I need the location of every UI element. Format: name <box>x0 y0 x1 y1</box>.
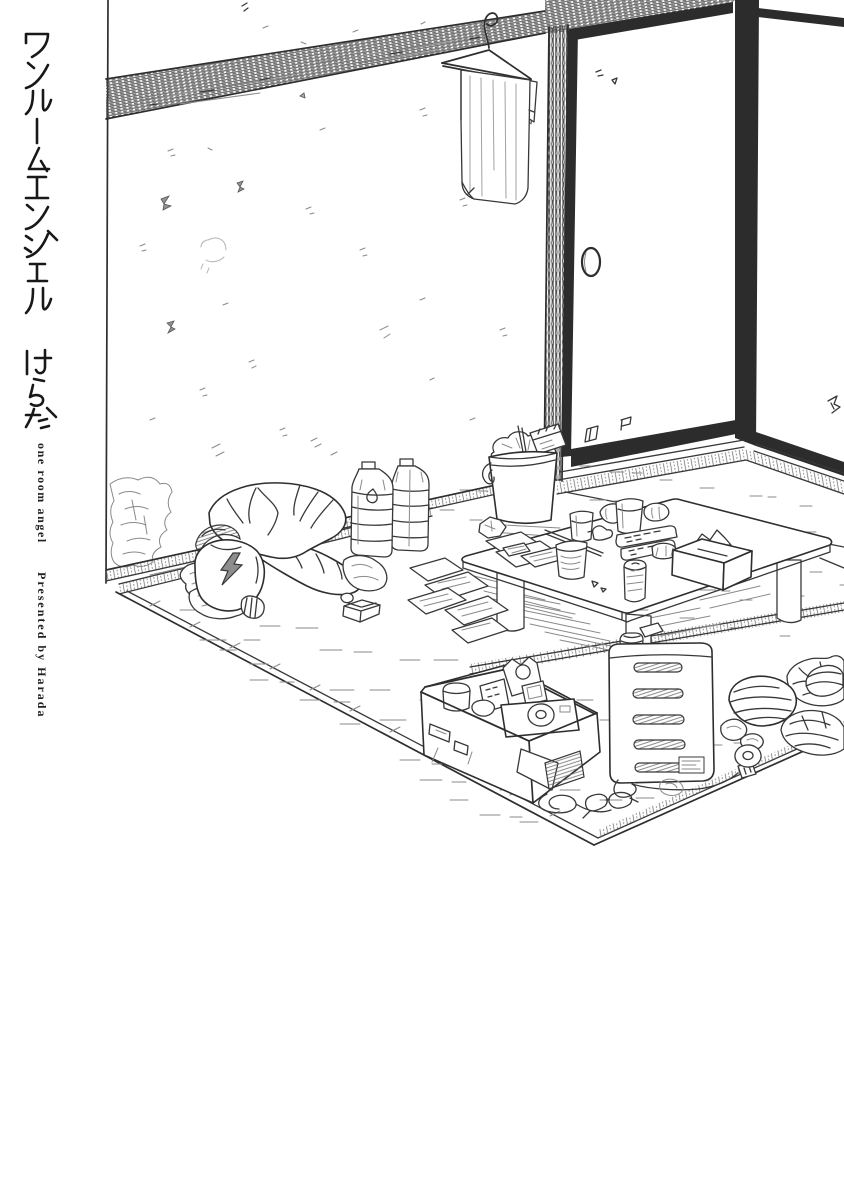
svg-text:Presented by Harada: Presented by Harada <box>35 572 49 718</box>
svg-text:one room angel: one room angel <box>35 443 49 544</box>
